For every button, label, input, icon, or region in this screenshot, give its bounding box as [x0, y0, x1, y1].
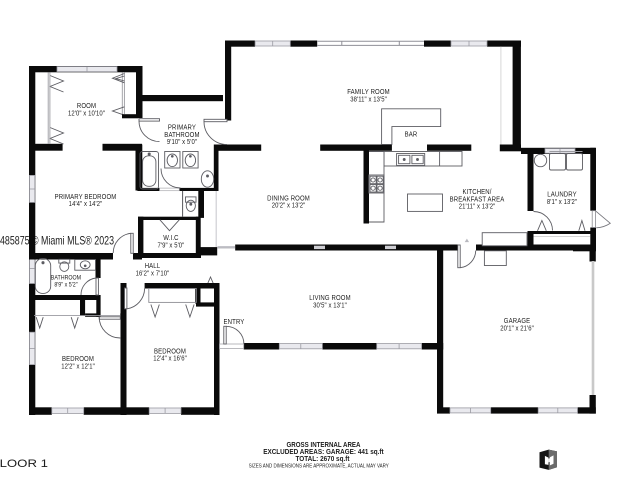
svg-text:BEDROOM: BEDROOM	[154, 348, 186, 356]
svg-text:FAMILY ROOM: FAMILY ROOM	[347, 89, 390, 97]
svg-text:LAUNDRY: LAUNDRY	[547, 191, 577, 199]
svg-text:20'2" x 13'2": 20'2" x 13'2"	[272, 202, 306, 210]
svg-text:BAR: BAR	[405, 131, 418, 139]
svg-text:ROOM: ROOM	[77, 103, 96, 111]
svg-text:FLOOR 1: FLOOR 1	[0, 458, 48, 470]
svg-text:38'11" x 13'5": 38'11" x 13'5"	[350, 96, 387, 104]
svg-text:HALL: HALL	[145, 263, 161, 271]
svg-text:12'4" x 16'6": 12'4" x 16'6"	[153, 355, 187, 363]
svg-text:7'9" x 5'0": 7'9" x 5'0"	[158, 242, 185, 250]
svg-text:PRIMARY BEDROOM: PRIMARY BEDROOM	[55, 193, 117, 201]
svg-text:BATHROOM: BATHROOM	[51, 275, 82, 281]
svg-text:SIZES AND DIMENSIONS ARE APPRO: SIZES AND DIMENSIONS ARE APPROXIMATE, AC…	[249, 464, 389, 470]
svg-text:9'10" x 5'0": 9'10" x 5'0"	[167, 139, 197, 147]
svg-text:ENTRY: ENTRY	[224, 319, 245, 327]
svg-text:12'2" x 12'1": 12'2" x 12'1"	[61, 363, 95, 371]
svg-text:16'2" x 7'10": 16'2" x 7'10"	[136, 270, 170, 278]
svg-text:20'1" x 21'6": 20'1" x 21'6"	[500, 325, 534, 333]
svg-text:14'4" x 14'2": 14'4" x 14'2"	[69, 201, 103, 209]
svg-text:8'9" x 5'2": 8'9" x 5'2"	[54, 282, 77, 288]
svg-text:12'0" x 10'10": 12'0" x 10'10"	[68, 110, 105, 118]
svg-text:DINING ROOM: DINING ROOM	[267, 195, 310, 203]
svg-text:TOTAL: 2670 sq.ft: TOTAL: 2670 sq.ft	[296, 454, 350, 463]
svg-text:30'5" x 13'1": 30'5" x 13'1"	[313, 302, 347, 310]
svg-text:GARAGE: GARAGE	[504, 318, 531, 326]
svg-text:LIVING ROOM: LIVING ROOM	[309, 295, 350, 303]
svg-text:21'11" x 13'2": 21'11" x 13'2"	[459, 203, 496, 211]
svg-text:8'1" x 13'2": 8'1" x 13'2"	[547, 199, 577, 207]
svg-text:485875 © Miami MLS® 2023: 485875 © Miami MLS® 2023	[0, 233, 114, 247]
svg-text:BEDROOM: BEDROOM	[62, 356, 94, 364]
svg-text:W.I.C: W.I.C	[163, 235, 178, 243]
